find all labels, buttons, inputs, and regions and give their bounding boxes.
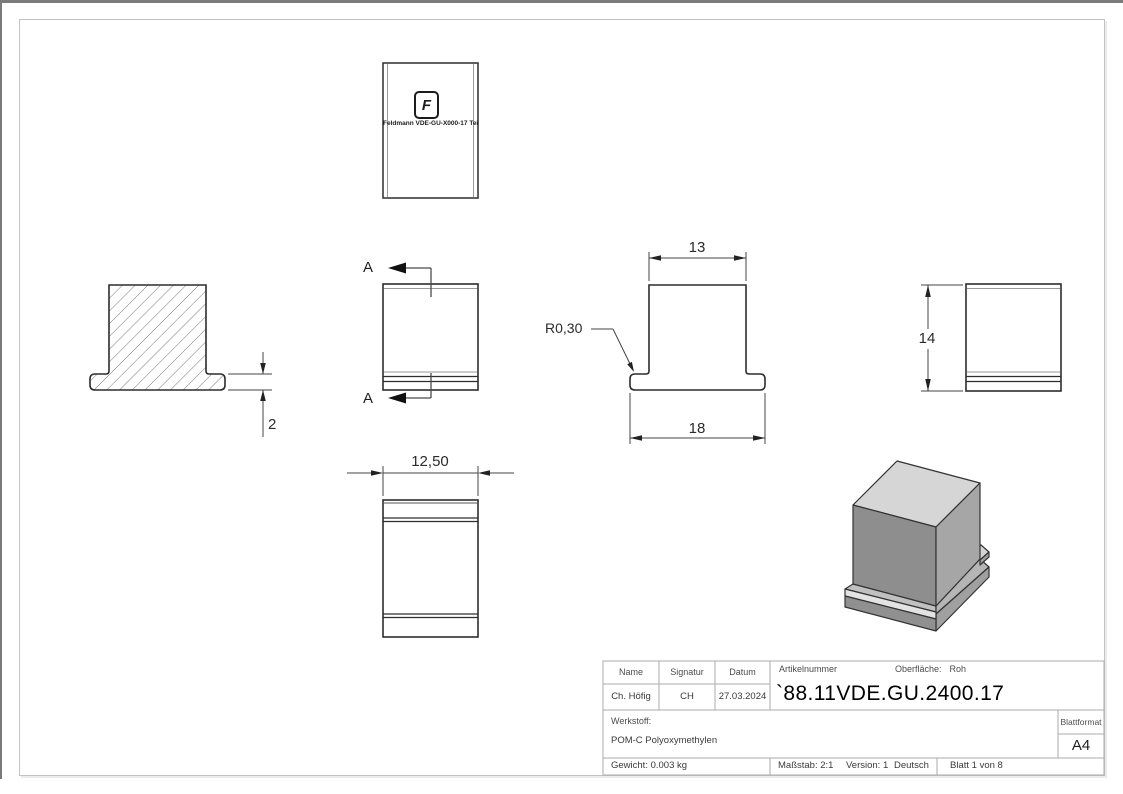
section-view-outline xyxy=(591,252,765,444)
top-view xyxy=(383,63,478,198)
tb-value-signature: CH xyxy=(659,690,715,704)
section-marker-top: A xyxy=(363,259,373,276)
tb-surface-label: Oberfläche: xyxy=(895,664,942,674)
dim-depth: 12,50 xyxy=(405,453,455,470)
isometric-view xyxy=(845,461,989,631)
tb-surface-value: Roh xyxy=(950,664,967,674)
tb-header-date: Datum xyxy=(715,665,770,679)
tb-value-name: Ch. Höfig xyxy=(603,690,659,704)
logo-caption: Feldmann VDE-GU-X000-17 Teil1 xyxy=(383,120,478,127)
dim-height: 14 xyxy=(913,330,941,347)
company-logo-icon: F xyxy=(414,91,439,119)
side-view-section-marks xyxy=(383,263,478,404)
tb-material-value: POM-C Polyoxymethylen xyxy=(611,735,717,746)
tb-weight: Gewicht: 0.003 kg xyxy=(611,760,687,771)
dim-top-width: 13 xyxy=(683,239,711,256)
tb-article-number: `88.11VDE.GU.2400.17 xyxy=(776,682,1004,706)
tb-header-name: Name xyxy=(603,665,659,679)
tb-scale: Maßstab: 2:1 xyxy=(778,760,833,771)
dim-corner-radius: R0,30 xyxy=(545,320,582,336)
section-marker-bottom: A xyxy=(363,390,373,407)
tb-surface: Oberfläche:Roh xyxy=(895,664,966,674)
drawing-canvas xyxy=(0,0,1123,794)
tb-language: Deutsch xyxy=(894,760,929,771)
tb-article-label: Artikelnummer xyxy=(779,664,837,674)
tb-header-signature: Signatur xyxy=(659,665,715,679)
tb-version: Version: 1 xyxy=(846,760,888,771)
tb-sheet-format-value: A4 xyxy=(1058,737,1104,754)
dim-base-width: 18 xyxy=(683,420,711,437)
dim-flange-height: 2 xyxy=(268,416,276,433)
tb-value-date: 27.03.2024 xyxy=(715,690,770,704)
tb-sheet-format-label: Blattformat xyxy=(1058,717,1104,727)
tb-material-label: Werkstoff: xyxy=(611,716,651,726)
section-view-hatched xyxy=(90,285,272,437)
tb-sheet-number: Blatt 1 von 8 xyxy=(950,760,1003,771)
drawing-sheet: F Feldmann VDE-GU-X000-17 Teil1 2 13 18 … xyxy=(0,0,1123,794)
bottom-view xyxy=(347,466,514,637)
right-view xyxy=(921,284,1061,391)
